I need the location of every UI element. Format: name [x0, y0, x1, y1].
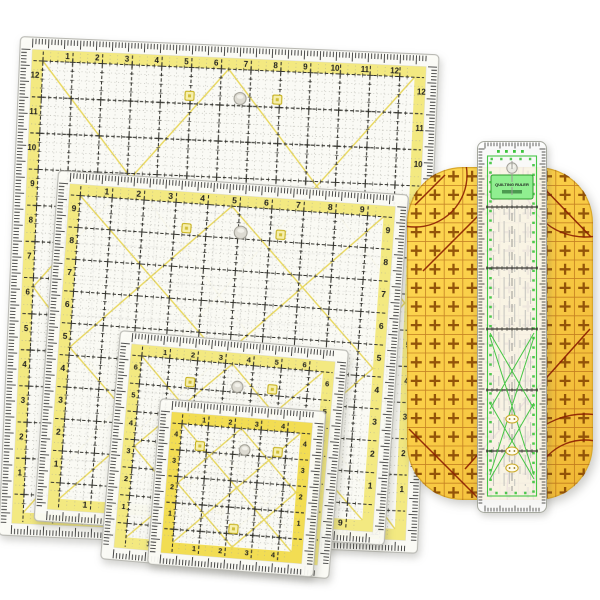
ruler-number: 2: [124, 474, 129, 483]
marker-badge-icon: [506, 447, 518, 455]
brand-logo-icon: [276, 230, 286, 240]
ruler-number: 12: [30, 71, 40, 80]
ruler-number: 1: [104, 186, 110, 196]
ruler-number: 5: [131, 390, 136, 399]
quilting-ruler-4in-graphic: 1144223333224411: [147, 398, 327, 578]
ruler-number: 11: [29, 107, 38, 116]
ruler-number: 3: [372, 416, 378, 426]
ruler-number: 4: [200, 193, 206, 203]
ruler-number: 1: [367, 480, 373, 490]
ruler-number: 6: [264, 197, 270, 207]
ruler-number: 5: [232, 195, 238, 205]
strip-ruler-label: QUILTING RULER: [495, 182, 529, 187]
ruler-number: 1: [296, 520, 301, 528]
ruler-number: 9: [338, 517, 344, 527]
quilting-ruler-4in: 1144223333224411: [147, 398, 327, 578]
ruler-number: 1: [168, 509, 173, 517]
brand-logo-icon: [185, 377, 195, 387]
ruler-number: 1: [53, 458, 59, 468]
ruler-number: 2: [136, 189, 142, 199]
ruler-number: 3: [126, 446, 131, 455]
ruler-number: 10: [27, 143, 37, 152]
brand-logo-icon: [182, 223, 192, 233]
ruler-number: 7: [67, 267, 73, 277]
ruler-number: 12: [390, 66, 400, 75]
ruler-number: 3: [58, 394, 64, 404]
ruler-number: 3: [172, 457, 177, 465]
ruler-number: 1: [121, 502, 126, 511]
ruler-number: 2: [228, 418, 233, 426]
ruler-number: 9: [359, 204, 365, 214]
ruler-number: 11: [360, 65, 369, 74]
ruler-number: 3: [255, 421, 260, 429]
ruler-number: 2: [191, 350, 196, 359]
ruler-number: 4: [374, 384, 380, 394]
ruler-number: 11: [415, 124, 424, 133]
hang-hole-icon: [239, 444, 250, 455]
ruler-number: 5: [274, 358, 279, 367]
ruler-number: 3: [244, 549, 249, 557]
quilting-strip-ruler-graphic: QUILTING RULER: [477, 141, 547, 513]
ruler-number: 8: [69, 235, 75, 245]
ruler-number: 4: [60, 362, 66, 372]
brand-logo-icon: [267, 385, 277, 395]
ruler-number: 4: [302, 440, 307, 448]
brand-logo-icon: [229, 524, 239, 534]
ruler-number: 6: [325, 379, 330, 388]
brand-logo-icon: [273, 95, 282, 104]
ruler-number: 4: [281, 423, 286, 431]
product-photo: 1112122211113310104499558866777766885599…: [0, 0, 600, 600]
ruler-number: 1: [202, 416, 207, 424]
brand-logo-icon: [273, 447, 283, 457]
hang-hole-icon: [231, 381, 243, 393]
ruler-number: 5: [62, 331, 68, 341]
ruler-number: 3: [168, 191, 174, 201]
marker-badge-icon: [506, 464, 518, 472]
ruler-number: 2: [298, 493, 303, 501]
ruler-number: 1: [163, 348, 168, 357]
ruler-number: 12: [417, 88, 427, 97]
quilting-strip-ruler: QUILTING RULER: [477, 141, 547, 513]
ruler-number: 6: [65, 299, 71, 309]
marker-badge-icon: [506, 415, 518, 423]
ruler-number: 6: [302, 360, 307, 369]
hang-hole-icon: [234, 226, 248, 240]
ruler-number: 7: [296, 200, 302, 210]
ruler-number: 8: [328, 202, 334, 212]
ruler-number: 3: [219, 353, 224, 362]
ruler-number: 5: [376, 353, 382, 363]
hang-hole-icon: [234, 92, 247, 105]
ruler-number: 6: [379, 321, 385, 331]
ruler-number: 7: [381, 289, 387, 299]
ruler-number: 1: [82, 500, 88, 510]
ruler-number: 1: [192, 545, 197, 553]
brand-logo-icon: [185, 91, 194, 100]
ruler-number: 10: [331, 64, 341, 73]
ruler-number: 2: [170, 483, 175, 491]
ruler-number: 6: [133, 362, 138, 371]
ruler-number: 4: [174, 430, 179, 438]
ruler-number: 4: [271, 551, 276, 559]
ruler-number: 8: [383, 257, 389, 267]
ruler-number: 3: [300, 467, 305, 475]
ruler-number: 2: [218, 547, 223, 555]
brand-logo-icon: [195, 441, 205, 451]
